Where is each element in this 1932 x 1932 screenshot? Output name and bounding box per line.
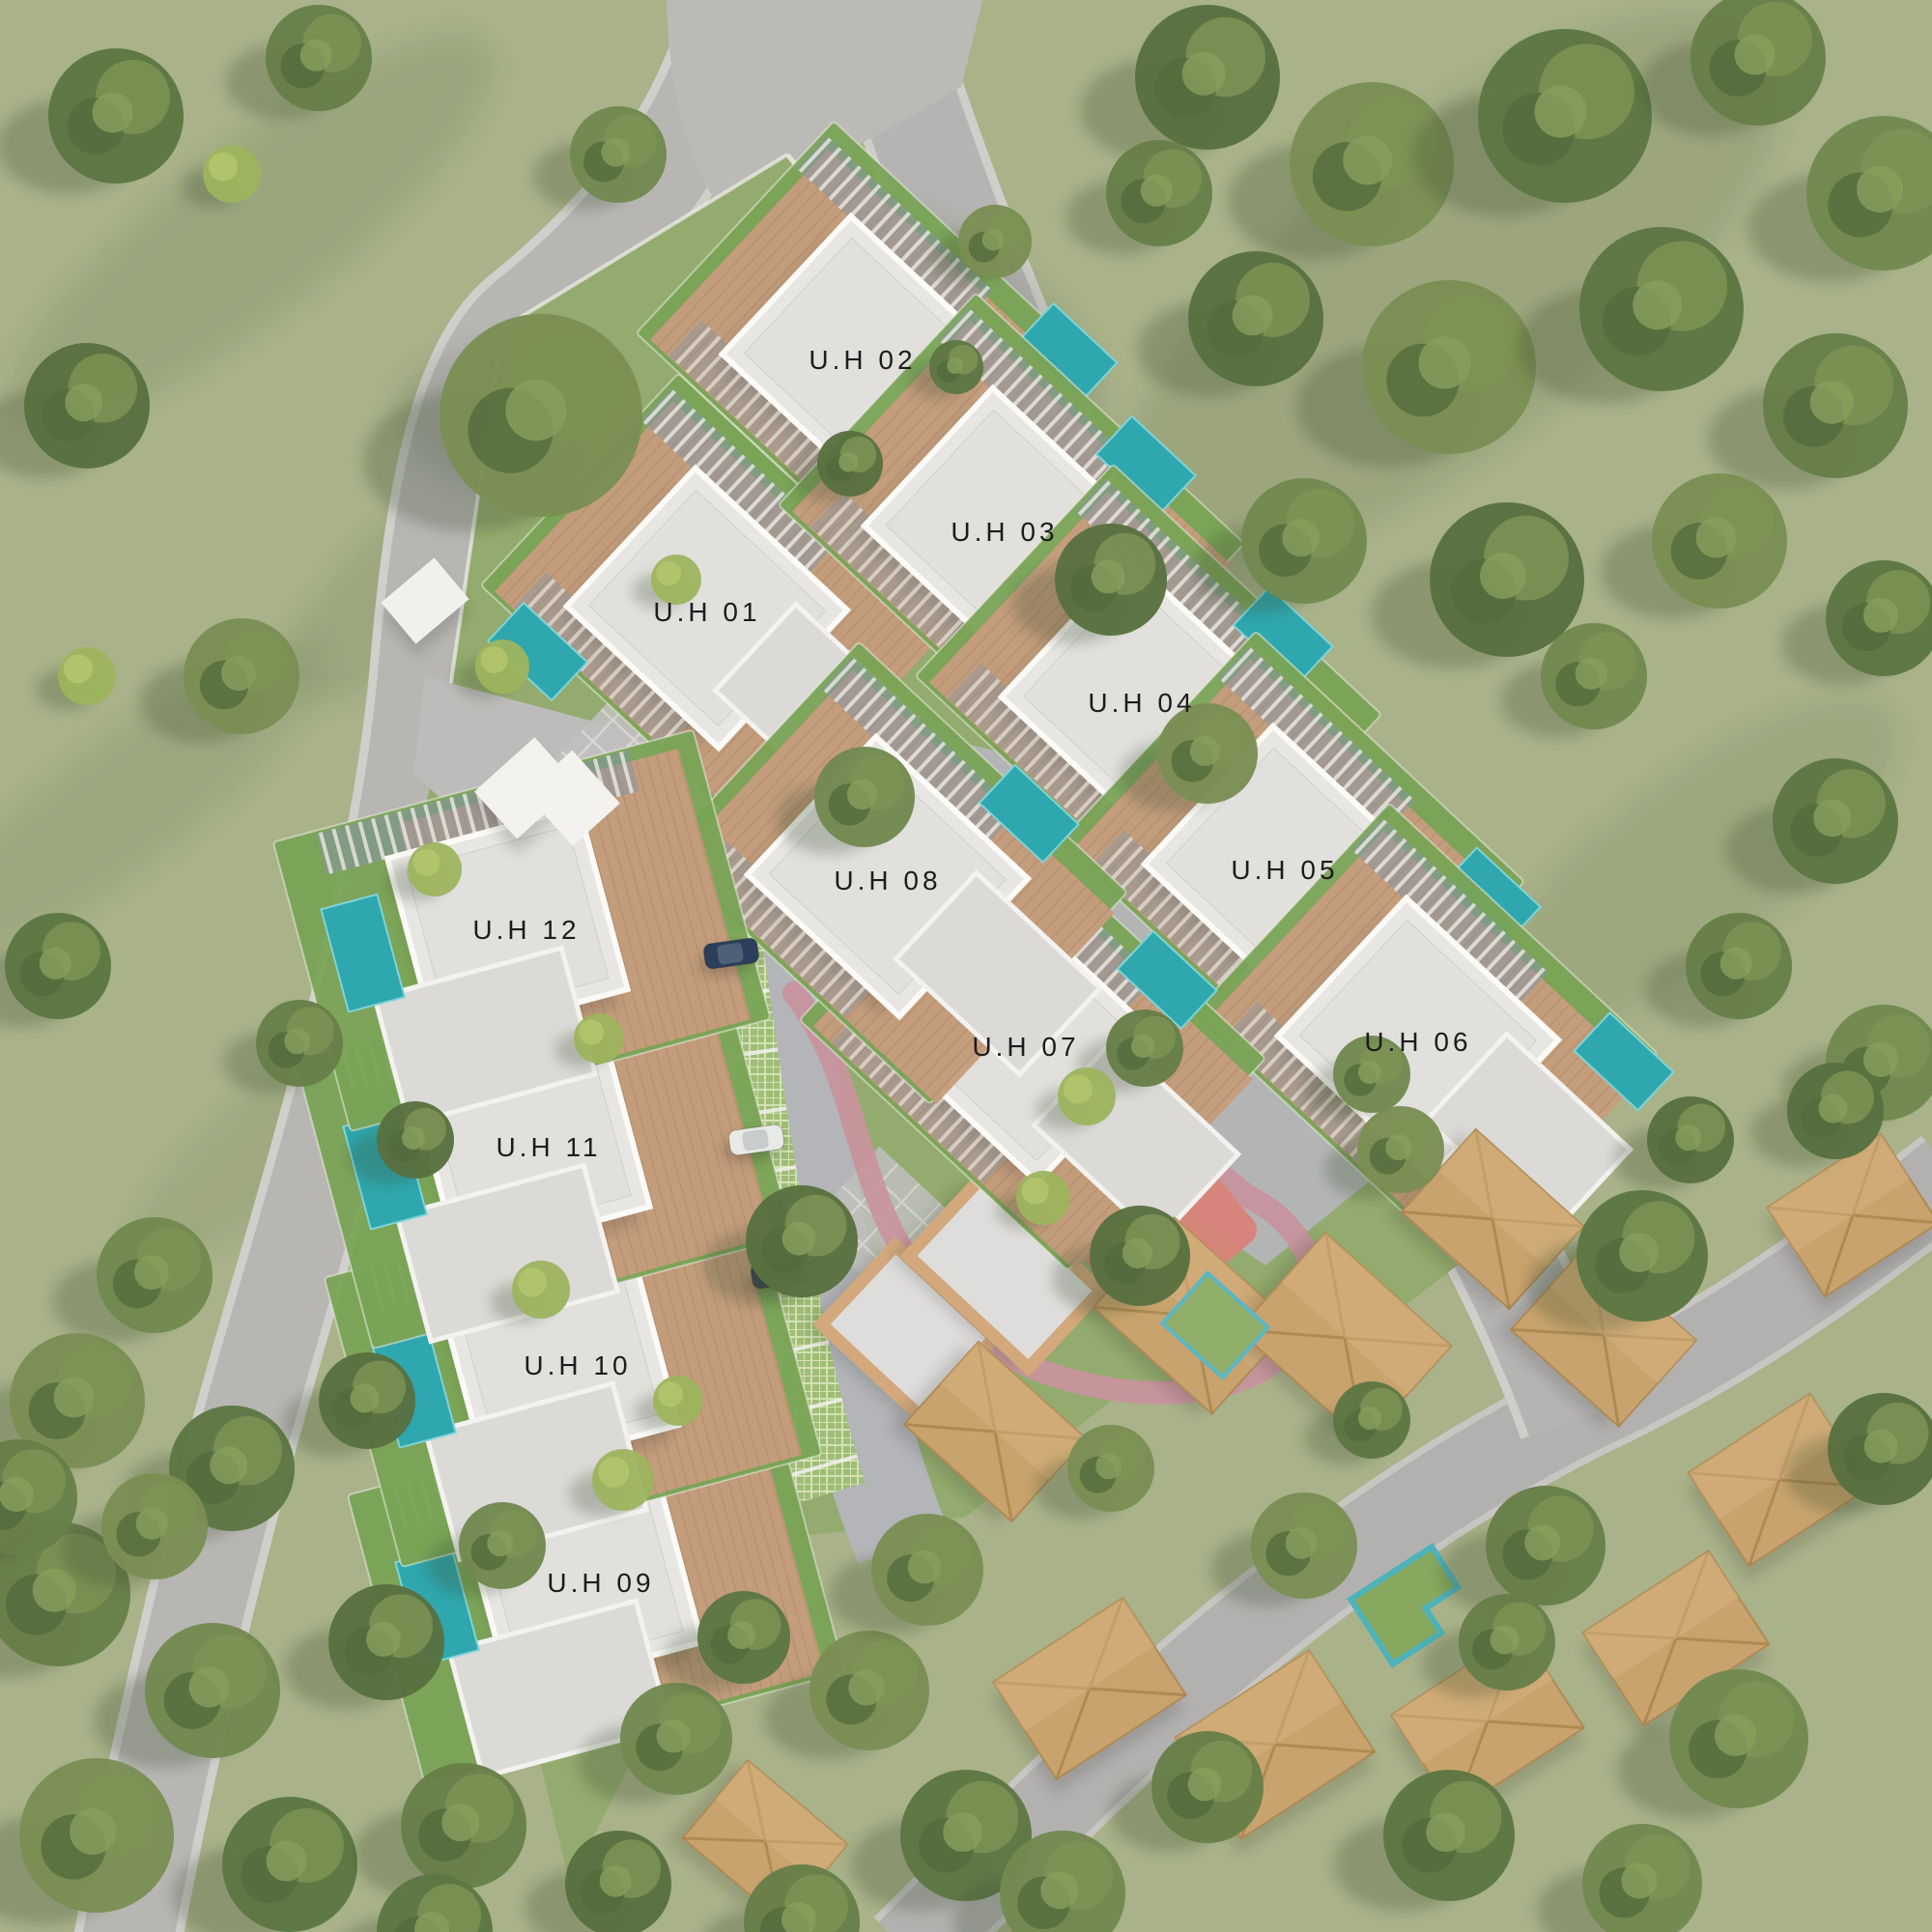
unit-label: U.H 04: [1088, 688, 1195, 718]
unit-label: U.H 07: [972, 1032, 1079, 1062]
site-plan-aerial-view: U.H 01U.H 02U.H 03U.H 04U.H 05U.H 06U.H …: [0, 0, 1932, 1932]
unit-label: U.H 11: [496, 1132, 601, 1162]
unit-label: U.H 01: [653, 597, 760, 627]
unit-label: U.H 08: [834, 866, 941, 895]
unit-label: U.H 02: [809, 345, 916, 375]
unit-label: U.H 09: [547, 1568, 654, 1598]
unit-label: U.H 12: [472, 915, 580, 945]
car-roof: [742, 1128, 770, 1151]
car-roof: [717, 942, 745, 964]
unit-label: U.H 06: [1364, 1027, 1471, 1057]
unit-label: U.H 10: [524, 1350, 631, 1380]
unit-label: U.H 03: [951, 517, 1058, 547]
masterplan-render: U.H 01U.H 02U.H 03U.H 04U.H 05U.H 06U.H …: [0, 0, 1932, 1932]
unit-label: U.H 05: [1231, 855, 1338, 885]
